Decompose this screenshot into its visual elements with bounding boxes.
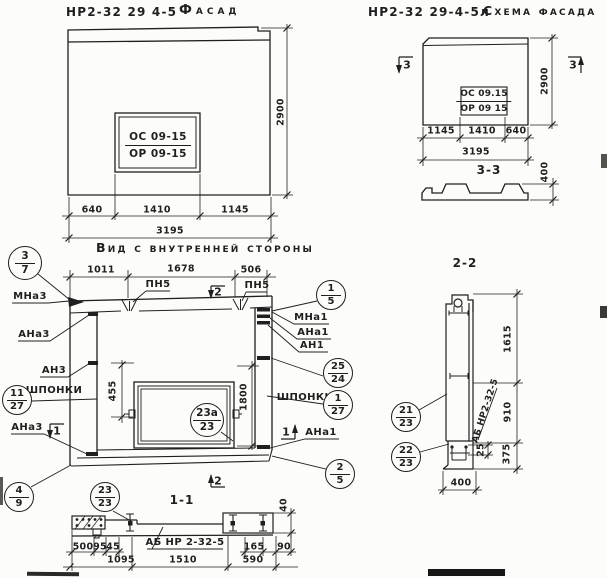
callout-sheet: 7 bbox=[21, 264, 28, 276]
s22-dim-1615: 1615 bbox=[503, 325, 513, 353]
label-an3: АН3 bbox=[42, 366, 66, 376]
facade-dim-total: 3195 bbox=[156, 226, 184, 236]
label-ab-nr: АБ НР 2-32-5 bbox=[146, 538, 225, 548]
callout-sheet: 23 bbox=[399, 418, 413, 429]
callout-sheet: 27 bbox=[10, 401, 24, 412]
s11-dim-95: 95 bbox=[93, 542, 107, 552]
callout-num: 1 bbox=[328, 394, 348, 406]
facade-window-mark: ОС 09-15 ОР 09-15 bbox=[125, 130, 191, 160]
inner-dim-1800: 1800 bbox=[239, 383, 249, 411]
s11-dim-40: 40 bbox=[279, 498, 289, 512]
callout-num: 25 bbox=[328, 362, 348, 374]
section-3-3-drawing bbox=[422, 184, 528, 200]
callout-3-7: 3 7 bbox=[8, 246, 42, 280]
schema-window-mark-den: ОР 09 15 bbox=[456, 102, 511, 114]
s22-dim-25: 25 bbox=[476, 443, 486, 457]
scan-artifact bbox=[27, 572, 79, 576]
callout-num: 1 bbox=[321, 284, 341, 296]
label-pn5-left: ПН5 bbox=[146, 280, 171, 290]
callout-num: 22 bbox=[396, 446, 416, 458]
inner-flag-right: 1 bbox=[282, 427, 290, 438]
s11-dim-500: 500 bbox=[73, 542, 94, 552]
label-ana1-lower: АНа1 bbox=[305, 428, 336, 438]
drawing-sheet: НР2-32 29 4-5 Фасад НР2-32 29-4-5л Схема… bbox=[0, 0, 607, 578]
callout-1-27: 1 27 bbox=[323, 390, 353, 420]
schema-title-text: Схема фасада bbox=[483, 5, 596, 18]
callout-25-24: 25 24 bbox=[323, 358, 353, 388]
callout-num: 4 bbox=[9, 486, 29, 498]
callout-sheet: 23 bbox=[98, 498, 112, 509]
s22-dim-375: 375 bbox=[502, 444, 512, 465]
inner-flag-top: 2 bbox=[214, 287, 222, 298]
callout-sheet: 5 bbox=[337, 475, 344, 486]
facade-title-code: НР2-32 29 4-5 bbox=[66, 6, 177, 18]
label-ana1: АНа1 bbox=[297, 328, 328, 338]
callout-sheet: 9 bbox=[16, 498, 23, 509]
inner-view-title: Вид с внутренней стороны bbox=[96, 242, 314, 255]
scan-artifact bbox=[600, 306, 607, 318]
scan-artifact bbox=[601, 154, 607, 168]
label-ana3: АНа3 bbox=[18, 330, 49, 340]
callout-2-5: 2 5 bbox=[325, 459, 355, 489]
schema-dim-total: 3195 bbox=[462, 147, 490, 157]
section-2-2-drawing bbox=[443, 295, 473, 469]
schema-dim-1410: 1410 bbox=[468, 126, 496, 136]
schema-section-flags bbox=[396, 56, 584, 74]
callout-num: 23 bbox=[95, 486, 115, 498]
facade-dim-height: 2900 bbox=[276, 98, 286, 126]
label-mna1: МНа1 bbox=[294, 313, 328, 323]
s22-dim-910: 910 bbox=[503, 402, 513, 423]
scan-artifact bbox=[428, 569, 505, 576]
inner-flag-left: 1 bbox=[53, 426, 61, 437]
s11-dim-90: 90 bbox=[277, 542, 291, 552]
s11-dim-1510: 1510 bbox=[169, 555, 197, 565]
callout-num: 11 bbox=[7, 389, 27, 401]
callout-num: 2 bbox=[330, 463, 350, 475]
inner-panel-drawing bbox=[70, 296, 272, 466]
callout-sheet: 23 bbox=[200, 421, 215, 433]
facade-dim-1145: 1145 bbox=[221, 205, 249, 215]
callout-11-27: 11 27 bbox=[2, 385, 32, 415]
label-shponki-left: ШПОНКИ bbox=[26, 386, 83, 396]
facade-dim-1410: 1410 bbox=[143, 205, 171, 215]
section-3-3-dim-400: 400 bbox=[540, 162, 550, 183]
s11-dim-45: 45 bbox=[106, 542, 120, 552]
s11-dim-1095: 1095 bbox=[107, 555, 135, 565]
schema-flag-left: 3 bbox=[403, 60, 411, 71]
callout-sheet: 24 bbox=[331, 374, 345, 385]
callout-4-9: 4 9 bbox=[4, 482, 34, 512]
schema-dim-height: 2900 bbox=[540, 67, 550, 95]
label-mna3: МНа3 bbox=[13, 292, 47, 302]
inner-anchor-tabs bbox=[68, 297, 270, 456]
callout-num: 21 bbox=[396, 406, 416, 418]
callout-sheet: 27 bbox=[331, 406, 345, 417]
scan-artifact bbox=[0, 477, 3, 505]
callout-1-5: 1 5 bbox=[316, 280, 346, 310]
schema-dim-640: 640 bbox=[506, 126, 527, 136]
label-pn5-right: ПН5 bbox=[245, 281, 270, 291]
facade-panel-drawing bbox=[68, 27, 270, 195]
section-1-1-title: 1-1 bbox=[170, 494, 195, 506]
schema-title-code: НР2-32 29-4-5л bbox=[368, 6, 490, 18]
inner-dim-1678: 1678 bbox=[167, 264, 195, 274]
facade-title-text: Фасад bbox=[179, 4, 240, 17]
label-ana3-lower: АНа3 bbox=[11, 423, 42, 433]
callout-21-23: 21 23 bbox=[391, 402, 421, 432]
schema-window-mark-num: ОС 09.15 bbox=[456, 88, 511, 102]
callout-num: 3 bbox=[15, 251, 35, 264]
callout-23a-23: 23а 23 bbox=[190, 403, 224, 437]
callout-sheet: 5 bbox=[328, 296, 335, 307]
callout-23-23: 23 23 bbox=[90, 482, 120, 512]
inner-dim-1011: 1011 bbox=[87, 265, 115, 275]
callout-sheet: 23 bbox=[399, 458, 413, 469]
facade-dim-640: 640 bbox=[82, 205, 103, 215]
schema-flag-right: 3 bbox=[569, 60, 577, 71]
schema-dim-1145: 1145 bbox=[427, 126, 455, 136]
section-3-3-title: 3-3 bbox=[477, 164, 502, 176]
schema-window-mark: ОС 09.15 ОР 09 15 bbox=[456, 88, 511, 114]
s11-dim-590: 590 bbox=[243, 555, 264, 565]
callout-22-23: 22 23 bbox=[391, 442, 421, 472]
label-an1: АН1 bbox=[300, 341, 324, 351]
callout-num: 23а bbox=[193, 408, 221, 421]
section-1-1-rebar-dots bbox=[76, 518, 265, 527]
inner-flag-bottom: 2 bbox=[214, 476, 222, 487]
facade-window-mark-num: ОС 09-15 bbox=[125, 130, 191, 146]
inner-dim-506: 506 bbox=[241, 265, 262, 275]
s11-dim-165: 165 bbox=[244, 542, 265, 552]
section-2-2-title: 2-2 bbox=[453, 257, 478, 269]
s22-dim-400: 400 bbox=[451, 478, 472, 488]
inner-dim-455: 455 bbox=[108, 381, 118, 402]
facade-window-mark-den: ОР 09-15 bbox=[125, 146, 191, 160]
